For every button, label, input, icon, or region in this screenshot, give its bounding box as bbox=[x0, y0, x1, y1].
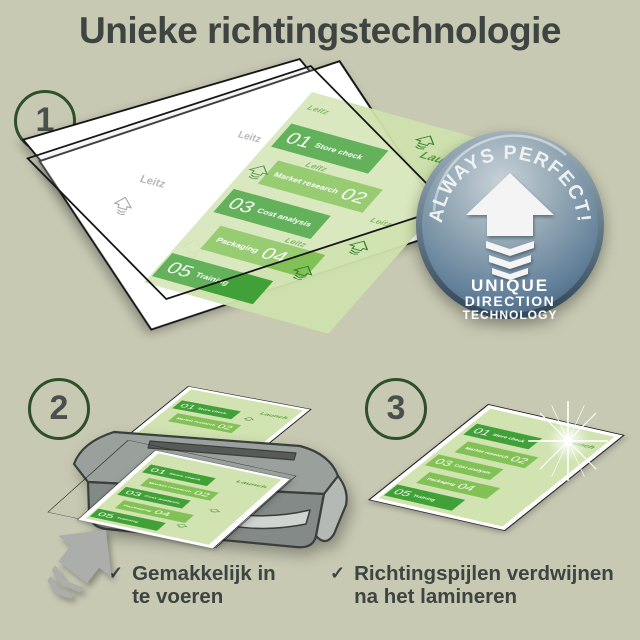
bullet-1-line-1: Gemakkelijk in bbox=[132, 562, 276, 585]
step-3-number: 3 bbox=[387, 389, 406, 428]
bullet-easy-feeding: ✓ Gemakkelijk in te voeren bbox=[108, 562, 276, 608]
check-icon: ✓ bbox=[330, 563, 345, 608]
badge-line-3: TECHNOLOGY bbox=[463, 308, 558, 319]
always-perfect-badge: ALWAYS PERFECT! UNIQUE DIRECTION TECHNOL… bbox=[416, 131, 604, 319]
infographic-canvas: Unieke richtingstechnologie 1 2 3 Leitz … bbox=[0, 0, 640, 640]
bullet-arrows-disappear: ✓ Richtingspijlen verdwijnen na het lami… bbox=[330, 562, 614, 608]
bullet-2-line-1: Richtingspijlen verdwijnen bbox=[354, 562, 614, 585]
feed-direction-arrow-icon bbox=[30, 515, 130, 610]
bullet-2-line-2: na het lamineren bbox=[354, 585, 614, 608]
direction-arrow-watermark-icon bbox=[173, 523, 190, 530]
direction-arrow-watermark-icon bbox=[206, 508, 223, 515]
bullet-1-line-2: te voeren bbox=[132, 585, 276, 608]
sparkle-icon bbox=[525, 398, 611, 484]
page-title: Unieke richtingstechnologie bbox=[0, 10, 640, 52]
step-3-marker: 3 bbox=[365, 378, 427, 440]
badge-line-2: DIRECTION bbox=[465, 293, 556, 309]
